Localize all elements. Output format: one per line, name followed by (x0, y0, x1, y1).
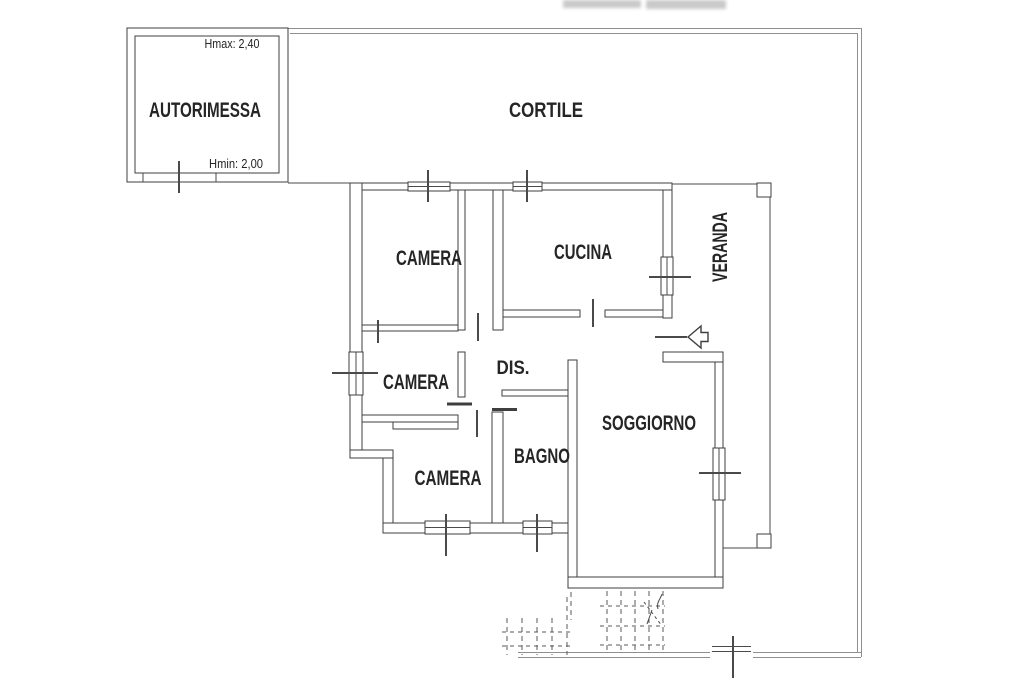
garage-hmin-label: Hmin: 2,00 (209, 156, 263, 171)
window-kitchen-top (513, 170, 542, 202)
garage-hmax-label: Hmax: 2,40 (205, 36, 260, 51)
kitchen-label: CUCINA (554, 241, 612, 264)
steps-annotation (644, 594, 662, 626)
window-bedroom-bottom (425, 514, 470, 556)
window-kitchen-east (649, 257, 691, 295)
bathroom-label: BAGNO (514, 445, 570, 468)
window-bathroom (523, 514, 552, 552)
entrance-arrow-icon (688, 326, 708, 348)
courtyard-label: CORTILE (509, 99, 583, 122)
floor-plan: CORTILE AUTORIMESSA Hmax: 2,40 Hmin: 2,0… (0, 0, 1024, 683)
hallway-label: DIS. (497, 358, 530, 379)
living-room-label: SOGGIORNO (602, 412, 696, 435)
exterior-steps (502, 591, 665, 655)
window-bedroom-middle-west (332, 352, 378, 395)
garage-label: AUTORIMESSA (149, 99, 261, 122)
window-living-east (699, 448, 741, 500)
bedroom-bottom-label: CAMERA (415, 467, 482, 490)
gate-icon (712, 636, 751, 678)
bedroom-middle-label: CAMERA (383, 371, 449, 394)
veranda-label: VERANDA (709, 212, 732, 282)
scan-artifact (563, 0, 726, 9)
window-bedroom-top (408, 170, 450, 202)
bedroom-top-label: CAMERA (396, 247, 462, 270)
